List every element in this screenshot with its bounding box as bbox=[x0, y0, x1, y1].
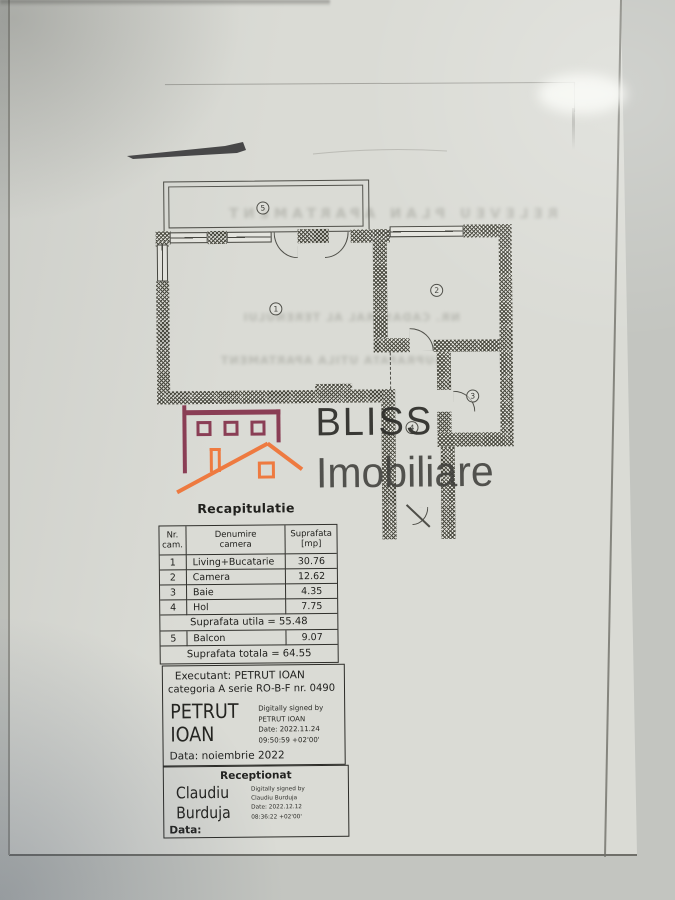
cell-name: Balcon bbox=[187, 630, 287, 646]
header-suprafata-l1: Suprafata bbox=[290, 529, 332, 539]
logo-roof-left bbox=[176, 442, 269, 494]
cell-nr: 1 bbox=[160, 555, 187, 570]
table-row-balcon: 5 Balcon 9.07 bbox=[160, 630, 337, 647]
cell-name: Baie bbox=[187, 584, 287, 600]
logo-chimney bbox=[210, 448, 221, 472]
recap-title: Recapitulatie bbox=[197, 500, 295, 516]
logo-wordmark-bottom: Imobiliare bbox=[316, 447, 494, 498]
logo-window-2 bbox=[223, 421, 238, 436]
receptionat-signature-name: Claudiu Burduja bbox=[176, 783, 231, 824]
digital-line: 08:36:22 +02'00' bbox=[251, 813, 326, 823]
logo-window-3 bbox=[250, 421, 265, 436]
printed-content: 1 2 3 4 5 BLISS Imobiliare Re bbox=[0, 0, 675, 900]
subtotal-row: Suprafata utila = 55.48 bbox=[160, 614, 337, 632]
recap-table: Nr. cam. Denumire camera Suprafata [mp] … bbox=[158, 524, 338, 665]
cell-value: 12.62 bbox=[286, 569, 337, 584]
logo-wordmark-top: BLISS bbox=[315, 400, 433, 446]
header-nr-l1: Nr. bbox=[167, 530, 179, 540]
logo-window-1 bbox=[196, 421, 211, 436]
scanned-document-photo: RELEVEU PLAN APARTAMENT NR. CADASTRAL AL… bbox=[0, 0, 675, 900]
table-row: 3 Baie 4.35 bbox=[160, 584, 337, 601]
digital-line: Date: 2022.11.24 bbox=[258, 724, 344, 735]
receptionat-title: Receptionat bbox=[164, 769, 348, 783]
total-row: Suprafata totala = 64.55 bbox=[161, 645, 338, 664]
executant-line2: categoria A serie RO-B-F nr. 0490 bbox=[168, 683, 335, 696]
table-row: 1 Living+Bucatarie 30.76 bbox=[160, 554, 337, 571]
executant-line1: Executant: PETRUT IOAN bbox=[175, 669, 305, 682]
receptionat-box: Receptionat Claudiu Burduja Digitally si… bbox=[163, 765, 350, 839]
cell-name: Hol bbox=[187, 599, 287, 615]
header-suprafata-l2: [mp] bbox=[301, 539, 321, 549]
logo-roof-window bbox=[258, 461, 275, 478]
cell-value: 9.07 bbox=[287, 630, 338, 645]
header-nr: Nr. cam. bbox=[159, 526, 186, 555]
table-row: 2 Camera 12.62 bbox=[160, 569, 337, 586]
cell-value: 30.76 bbox=[286, 554, 337, 569]
logo-wall-top bbox=[184, 409, 280, 414]
logo-wall-left bbox=[182, 405, 187, 473]
header-denumire-l2: camera bbox=[220, 540, 252, 550]
receptionat-digital-signature: Digitally signed by Claudiu Burduja Date… bbox=[251, 785, 326, 823]
cell-nr: 4 bbox=[160, 600, 187, 615]
receptionat-date: Data: bbox=[169, 824, 201, 836]
cell-nr: 2 bbox=[160, 570, 187, 585]
digital-line: 09:50:59 +02'00' bbox=[258, 735, 344, 746]
table-header-row: Nr. cam. Denumire camera Suprafata [mp] bbox=[159, 525, 336, 556]
header-denumire-l1: Denumire bbox=[215, 530, 257, 540]
executant-signature-name: PETRUT IOAN bbox=[170, 700, 239, 747]
cell-value: 7.75 bbox=[286, 599, 337, 614]
executant-digital-signature: Digitally signed by PETRUT IOAN Date: 20… bbox=[258, 703, 344, 746]
cell-nr: 3 bbox=[160, 585, 187, 600]
header-nr-l2: cam. bbox=[162, 540, 183, 550]
cell-value: 4.35 bbox=[286, 584, 337, 599]
cell-name: Camera bbox=[187, 569, 287, 585]
digital-line: Digitally signed by bbox=[258, 703, 344, 714]
logo-wall-right bbox=[276, 409, 280, 442]
logo-house-icon bbox=[169, 398, 310, 499]
digital-line: PETRUT IOAN bbox=[258, 713, 344, 724]
cell-name: Living+Bucatarie bbox=[187, 554, 287, 570]
cell-nr: 5 bbox=[160, 631, 187, 646]
executant-date: Data: noiembrie 2022 bbox=[170, 749, 285, 762]
executant-box: Executant: PETRUT IOAN categoria A serie… bbox=[162, 664, 346, 767]
header-suprafata: Suprafata [mp] bbox=[286, 525, 337, 554]
header-denumire: Denumire camera bbox=[186, 525, 286, 555]
table-row: 4 Hol 7.75 bbox=[160, 599, 337, 616]
